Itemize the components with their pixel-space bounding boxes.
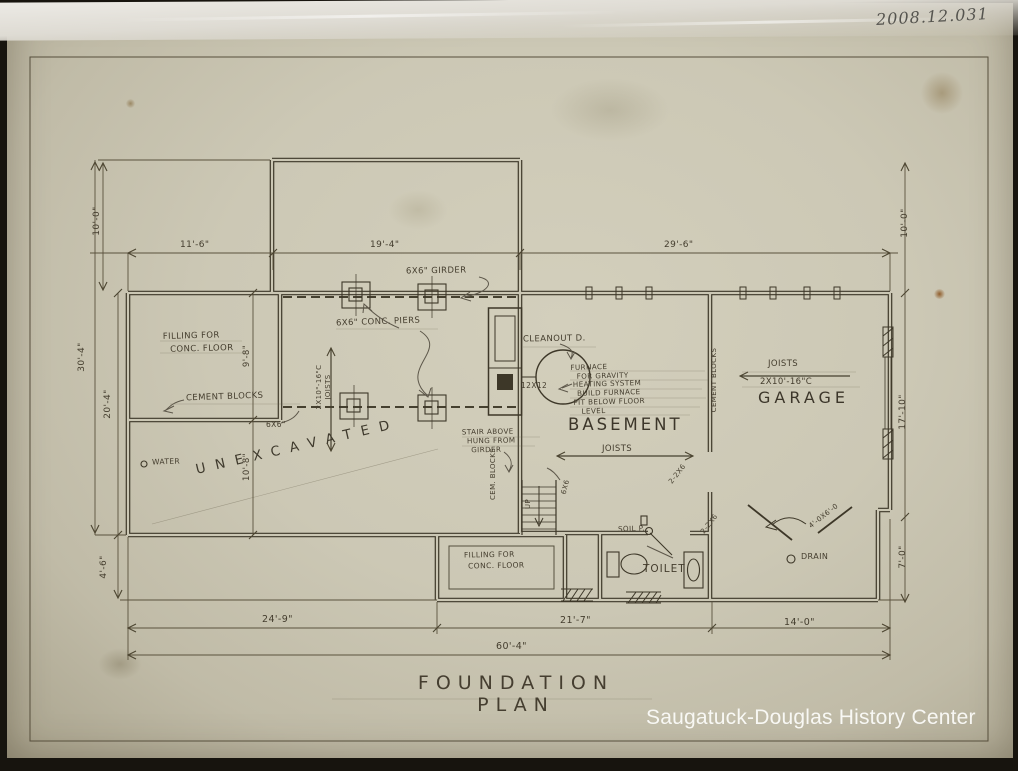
note-block-size: 6X6" <box>266 420 286 429</box>
dim-top-1: 11'-6" <box>180 240 209 250</box>
note-filling-left: FILLING FOR CONC. FLOOR <box>163 329 234 357</box>
toilet-fixtures <box>607 533 703 588</box>
dim-left-10: 10'-0" <box>92 200 102 242</box>
note-furnace: FURNACE FOR GRAVITY HEATING SYSTEM BUILD… <box>570 362 645 416</box>
dim-inner-10: 10'-8" <box>242 446 252 488</box>
plan-linework <box>0 0 1018 771</box>
note-cleanout: CLEANOUT D. <box>523 333 586 344</box>
dim-right-7: 7'-0" <box>898 536 908 578</box>
dim-bottom-60: 60'-4" <box>496 641 527 652</box>
dim-top-3: 29'-6" <box>664 240 693 250</box>
note-up: UP <box>524 499 532 509</box>
note-line: CONC. FLOOR <box>464 559 525 571</box>
dim-right-17: 17'-10" <box>898 388 908 436</box>
symbols <box>141 461 795 563</box>
note-garage-joists-size: 2X10'-16"C <box>760 377 812 387</box>
note-line: CONC. FLOOR <box>163 342 234 357</box>
dim-bottom-21: 21'-7" <box>560 615 591 626</box>
dimension-lines <box>90 160 905 660</box>
note-filling-bottom: FILLING FOR CONC. FLOOR <box>464 548 525 571</box>
archive-watermark: Saugatuck-Douglas History Center <box>646 706 976 730</box>
water-symbol <box>141 461 147 467</box>
room-label-toilet: TOILET <box>643 563 686 575</box>
chimney <box>488 308 522 415</box>
drain-symbol <box>787 555 795 563</box>
note-joists-basement: JOISTS <box>602 444 632 454</box>
note-garage-joists: JOISTS <box>768 359 798 369</box>
dim-left-20: 20'-4" <box>103 383 113 425</box>
note-girder: 6X6" GIRDER <box>406 265 467 276</box>
dim-right-10: 10'-0" <box>900 202 910 244</box>
dim-bottom-14: 14'-0" <box>784 617 815 628</box>
note-line: 2X10"-16"C <box>315 335 324 439</box>
room-label-garage: GARAGE <box>758 388 849 407</box>
drawing-title: FOUNDATION PLAN <box>376 672 656 716</box>
dim-inner-9: 9'-8" <box>242 335 252 377</box>
room-label-basement: BASEMENT <box>568 415 683 434</box>
dim-bottom-24: 24'-9" <box>262 614 293 625</box>
dim-top-2: 19'-4" <box>370 240 399 250</box>
dim-left-4: 4'-6" <box>99 546 109 588</box>
note-soil-pipe: SOIL P. <box>618 524 645 534</box>
note-water: WATER <box>152 457 180 467</box>
arrowheads <box>91 162 909 659</box>
note-flue-size: 12X12 <box>521 381 547 390</box>
note-line: JOISTS <box>324 335 333 439</box>
note-cem-blocks-vert: CEM. BLOCKS <box>489 438 497 510</box>
note-garage-cement-blocks: CEMENT BLOCKS <box>710 338 718 422</box>
scanned-drawing-photo: 2008.12.031 <box>0 0 1018 771</box>
note-drain: DRAIN <box>801 552 828 561</box>
dim-left-30: 30'-4" <box>77 336 87 378</box>
note-joists-left: 2X10"-16"C JOISTS <box>315 335 333 439</box>
